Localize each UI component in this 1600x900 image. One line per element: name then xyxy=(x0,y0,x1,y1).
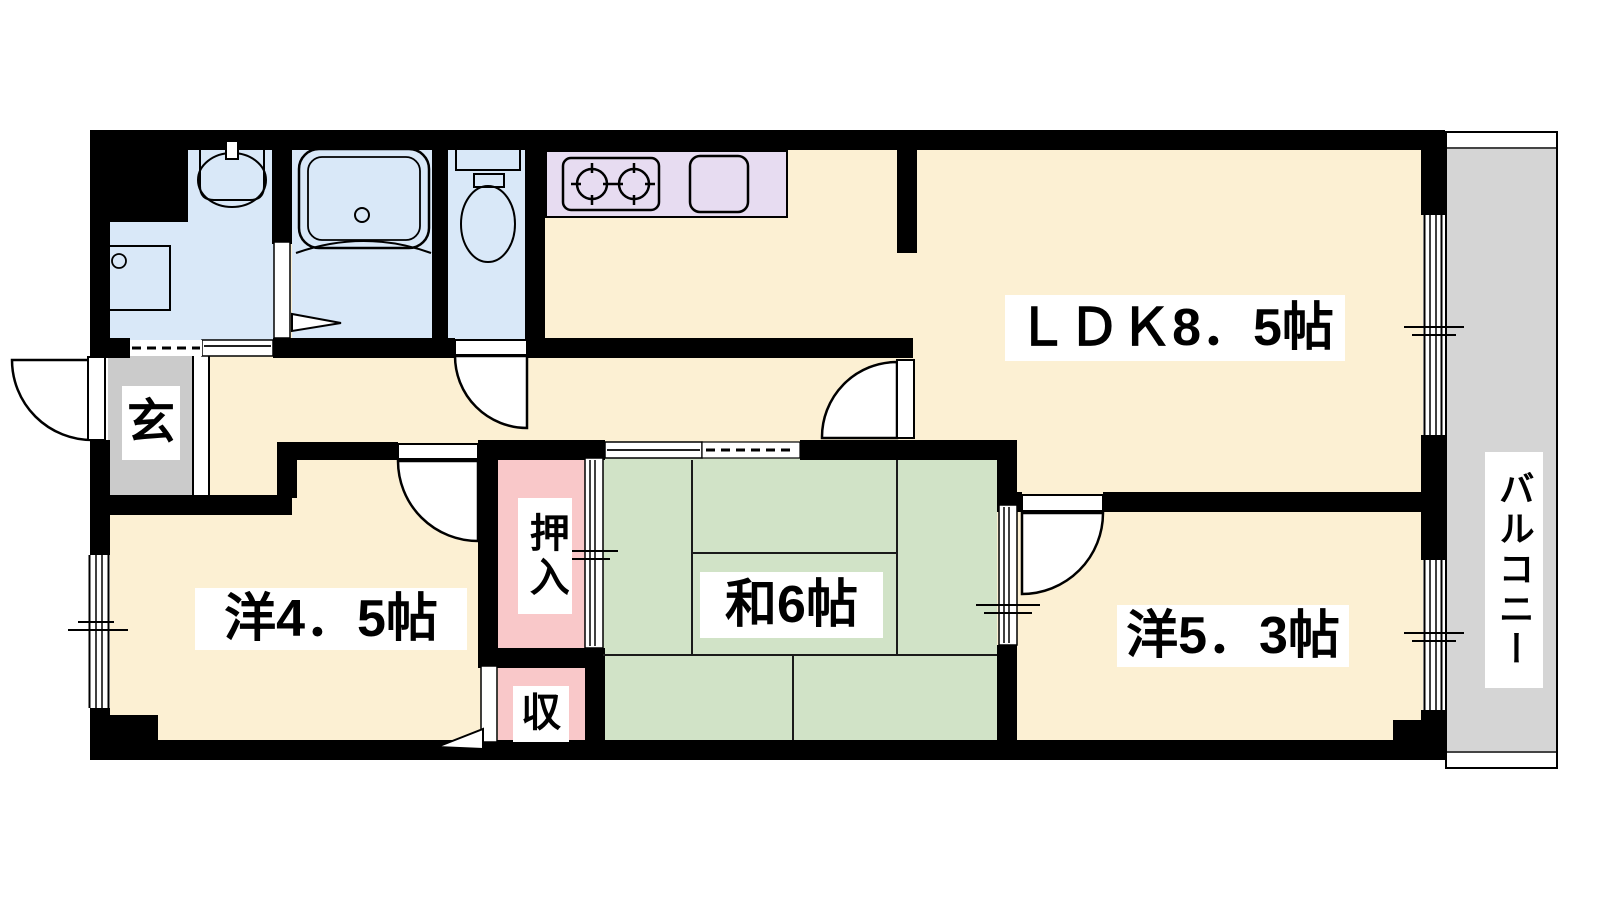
wall-bath-toilet xyxy=(432,130,448,340)
floorplan: ＬＤＫ8．5帖 和6帖 洋4．5帖 洋5．3帖 玄 押入 収 バルコニー xyxy=(0,0,1600,900)
room-toilet xyxy=(448,148,525,340)
wall-storage-right xyxy=(585,668,605,740)
wall-hall-connector xyxy=(277,460,297,498)
wall-hall-a xyxy=(277,442,398,460)
entrance-door-leaf xyxy=(88,357,105,440)
wall-top xyxy=(90,130,1445,150)
entrance-door-swing xyxy=(12,360,92,440)
room-washroom-upper xyxy=(188,148,274,342)
room-washroom-lower xyxy=(108,222,188,342)
room-label-storage: 収 xyxy=(513,686,569,742)
wall-west53-top-b xyxy=(1103,492,1423,512)
wall-right-b xyxy=(1421,435,1445,560)
wall-tatami-west53-b xyxy=(997,645,1017,740)
balcony-top-band xyxy=(1447,133,1556,149)
wall-step-bottomright xyxy=(1393,720,1445,745)
wall-west53-top-a xyxy=(997,492,1022,512)
wall-right-a xyxy=(1421,130,1445,215)
wall-step-bottomleft xyxy=(90,715,158,743)
wall-closet-divider xyxy=(478,648,605,668)
room-label-entrance: 玄 xyxy=(122,386,180,460)
room-label-balcony: バルコニー xyxy=(1485,452,1543,688)
room-label-ldk: ＬＤＫ8．5帖 xyxy=(1005,295,1345,361)
wall-bottom xyxy=(90,740,1445,760)
wall-left-a xyxy=(90,130,110,358)
wall-mid-c xyxy=(527,338,913,358)
kitchen-counter xyxy=(545,150,788,218)
wall-toilet-kitchen xyxy=(525,130,545,358)
wall-genkan-bottom xyxy=(90,495,292,515)
room-label-western-5-3: 洋5．3帖 xyxy=(1117,605,1349,667)
wall-kitchen-stub xyxy=(897,150,917,253)
genkan-step xyxy=(192,356,210,495)
room-label-japanese-6: 和6帖 xyxy=(700,572,883,638)
balcony-bottom-band xyxy=(1447,751,1556,767)
wall-mid-a xyxy=(90,338,130,358)
wall-oshiire-left xyxy=(478,440,498,668)
wall-hall-c xyxy=(800,440,997,460)
wall-mid-b xyxy=(273,338,455,358)
room-label-western-4-5: 洋4．5帖 xyxy=(195,588,467,650)
wall-washroom-bath xyxy=(272,130,292,244)
room-label-oshiire: 押入 xyxy=(518,498,572,614)
room-bath xyxy=(292,148,432,340)
